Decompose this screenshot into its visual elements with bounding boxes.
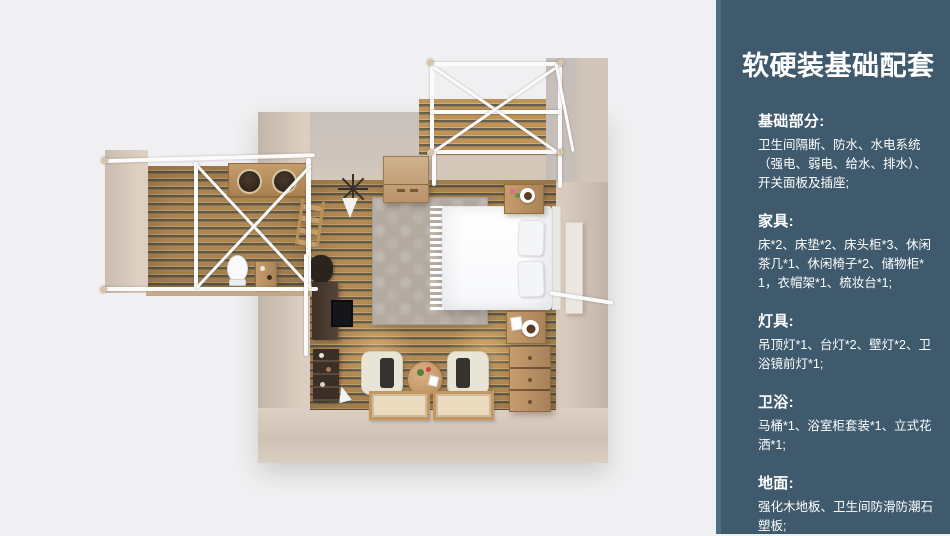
coffee-cup	[522, 320, 539, 337]
frame-knob	[100, 286, 107, 293]
plant	[426, 367, 431, 372]
seat-cushion	[456, 358, 470, 388]
flower	[510, 189, 515, 194]
plant	[417, 369, 424, 376]
shelf-item	[319, 353, 324, 358]
section-basics: 基础部分: 卫生间隔断、防水、水电系统（强电、弱电、给水、排水）、开关面板及插座…	[758, 110, 936, 193]
panel-title: 软硬装基础配套	[742, 44, 940, 83]
shelf-item	[320, 382, 325, 387]
slide-root: 软硬装基础配套 基础部分: 卫生间隔断、防水、水电系统（强电、弱电、给水、排水）…	[0, 0, 950, 534]
frame-knob	[101, 157, 108, 164]
bathroom-shelf	[255, 261, 277, 288]
coffee-cup	[520, 188, 535, 203]
annex-frame-bottom-rail	[103, 287, 318, 291]
section-heading: 家具:	[758, 210, 936, 231]
section-heading: 地面:	[758, 472, 936, 493]
floor-mat-left	[369, 391, 430, 420]
frame-knob	[427, 149, 434, 156]
canopy-post	[432, 152, 436, 186]
coffee	[524, 192, 532, 200]
table-item	[428, 375, 439, 387]
section-heading: 基础部分:	[758, 110, 936, 131]
section-body: 卫生间隔断、防水、水电系统（强电、弱电、给水、排水）、开关面板及插座;	[758, 136, 936, 193]
cabinet-handle	[397, 189, 405, 192]
toilet	[227, 255, 248, 282]
drawer-handle	[528, 400, 532, 404]
section-body: 吊顶灯*1、台灯*2、壁灯*2、卫浴镜前灯*1;	[758, 336, 936, 374]
paper-card	[510, 316, 523, 330]
cabinet-divider	[384, 184, 428, 185]
drawer-chest	[509, 346, 551, 412]
cabinet-handle	[410, 189, 418, 192]
tv-screen	[331, 300, 353, 327]
frame-knob	[427, 59, 434, 66]
floor-mat-right	[433, 391, 494, 420]
toiletry-item	[260, 266, 265, 271]
toiletry-item	[267, 275, 272, 280]
sink	[237, 169, 262, 194]
section-heading: 卫浴:	[758, 391, 936, 412]
desk-chair	[309, 255, 333, 283]
section-lighting: 灯具: 吊顶灯*1、台灯*2、壁灯*2、卫浴镜前灯*1;	[758, 310, 936, 374]
bedroom-frame-post	[304, 254, 308, 356]
pillow	[517, 261, 544, 298]
armchair-left	[361, 351, 403, 395]
section-furniture: 家具: 床*2、床垫*2、床头柜*3、休闲茶几*1、休闲椅子*2、储物柜*1，衣…	[758, 210, 936, 293]
seat-cushion	[380, 358, 394, 388]
dressing-mirror-panel	[565, 222, 583, 314]
pillow	[517, 220, 544, 257]
section-flooring: 地面: 强化木地板、卫生间防滑防潮石塑板;	[758, 472, 936, 536]
storage-cabinet	[383, 156, 429, 203]
panel-sections: 基础部分: 卫生间隔断、防水、水电系统（强电、弱电、给水、排水）、开关面板及插座…	[758, 110, 936, 536]
floorplan-render	[0, 0, 715, 534]
coffee	[526, 324, 535, 333]
drawer-handle	[528, 378, 532, 382]
drawer-handle	[528, 356, 532, 360]
deck-wall-band	[419, 155, 546, 183]
panel-edge-accent	[716, 0, 721, 534]
bathroom-wall-left	[105, 150, 148, 293]
armchair-right	[447, 351, 489, 395]
annex-frame-post	[194, 162, 198, 289]
info-panel: 软硬装基础配套 基础部分: 卫生间隔断、防水、水电系统（强电、弱电、给水、排水）…	[716, 0, 950, 534]
frame-knob	[557, 149, 564, 156]
shelf-item	[326, 367, 331, 372]
shelf-unit	[313, 349, 339, 401]
section-bathroom: 卫浴: 马桶*1、浴室柜套装*1、立式花洒*1;	[758, 391, 936, 455]
section-heading: 灯具:	[758, 310, 936, 331]
toilet-tank	[229, 279, 246, 286]
section-body: 床*2、床垫*2、床头柜*3、休闲茶几*1、休闲椅子*2、储物柜*1，衣帽架*1…	[758, 236, 936, 293]
section-body: 强化木地板、卫生间防滑防潮石塑板;	[758, 498, 936, 536]
section-body: 马桶*1、浴室柜套装*1、立式花洒*1;	[758, 417, 936, 455]
frame-knob	[557, 59, 564, 66]
